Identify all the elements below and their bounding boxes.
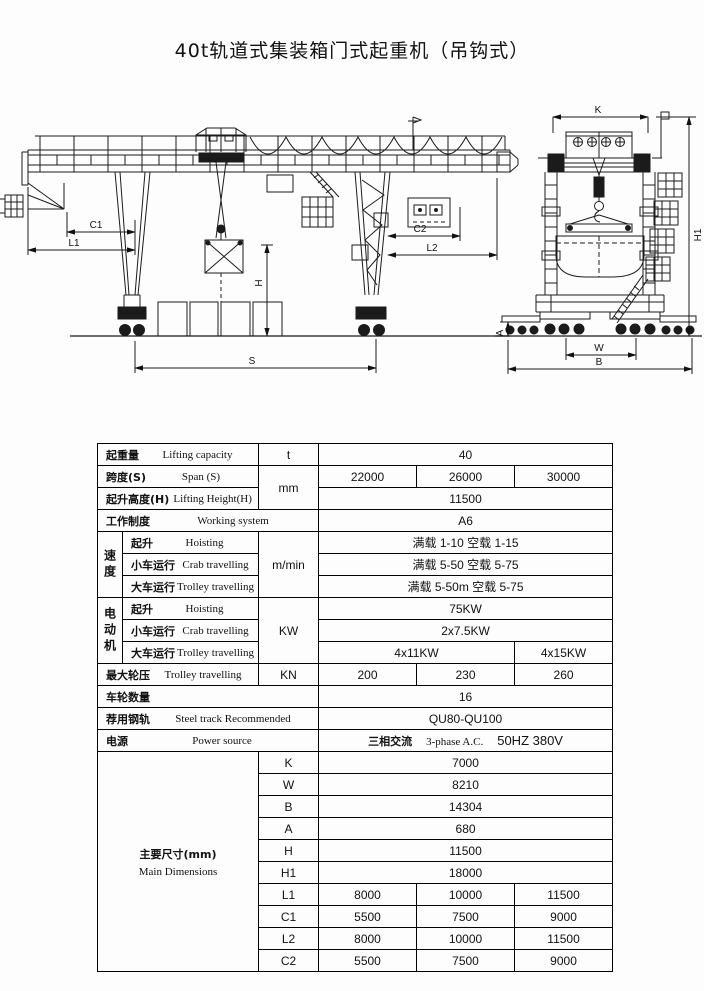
dim-label-b: B	[596, 357, 603, 368]
dim-label-a: A	[495, 329, 506, 336]
group-motor: 电动机	[98, 598, 123, 664]
page-title: 40t轨道式集装箱门式起重机（吊钩式）	[0, 36, 704, 63]
spec-table: 起重量Lifting capacity t 40 跨度(S)Span (S) m…	[97, 443, 613, 972]
unit-max-wheel-load: KN	[259, 664, 319, 686]
label-motor-trolley: 大车运行Trolley travelling	[123, 642, 259, 664]
festoon-cables	[250, 137, 502, 154]
value-motor-trolley-b: 4x15KW	[515, 642, 613, 664]
side-ladder	[612, 173, 682, 323]
dim-value-h: 11500	[319, 840, 613, 862]
dim-value-l2-3: 11500	[515, 928, 613, 950]
dim-key-l2: L2	[259, 928, 319, 950]
dim-value-h1: 18000	[319, 862, 613, 884]
row-max-wheel-load: 最大轮压Trolley travelling KN 200 230 260	[98, 664, 613, 686]
label-speed-trolley: 大车运行Trolley travelling	[123, 576, 259, 598]
dim-value-c1-3: 9000	[515, 906, 613, 928]
value-working-system: A6	[319, 510, 613, 532]
row-steel-track: 荐用钢轨Steel track Recommended QU80-QU100	[98, 708, 613, 730]
dim-key-a: A	[259, 818, 319, 840]
dim-key-c1: C1	[259, 906, 319, 928]
dim-value-c1-1: 5500	[319, 906, 417, 928]
value-steel-track: QU80-QU100	[319, 708, 613, 730]
dim-value-l2-2: 10000	[417, 928, 515, 950]
hook-assembly	[556, 158, 644, 277]
dim-label-l2: L2	[426, 243, 438, 254]
dim-key-l1: L1	[259, 884, 319, 906]
value-lifting-capacity: 40	[319, 444, 613, 466]
row-motor-hoisting: 电动机 起升Hoisting KW 75KW	[98, 598, 613, 620]
label-speed-crab: 小车运行Crab travelling	[123, 554, 259, 576]
dim-key-w: W	[259, 774, 319, 796]
unit-speed: m/min	[259, 532, 319, 598]
value-max-wheel-load-1: 200	[319, 664, 417, 686]
value-max-wheel-load-2: 230	[417, 664, 515, 686]
unit-lifting-capacity: t	[259, 444, 319, 466]
dim-key-c2: C2	[259, 950, 319, 972]
label-max-wheel-load: 最大轮压Trolley travelling	[98, 664, 259, 686]
value-speed-crab: 满载 5-50 空载 5-75	[319, 554, 613, 576]
label-power-source: 电源Power source	[98, 730, 319, 752]
dim-key-b: B	[259, 796, 319, 818]
value-motor-hoisting: 75KW	[319, 598, 613, 620]
railing-posts	[40, 136, 505, 150]
dim-key-h: H	[259, 840, 319, 862]
dim-value-k: 7000	[319, 752, 613, 774]
dim-label-l1: L1	[68, 238, 80, 249]
dim-label-h1: H1	[693, 228, 704, 241]
dim-label-s: S	[249, 356, 256, 367]
label-span: 跨度(S)Span (S)	[98, 466, 259, 488]
dim-label-c2: C2	[414, 224, 427, 235]
label-wheel-count: 车轮数量	[98, 686, 319, 708]
row-speed-crab: 小车运行Crab travelling 满载 5-50 空载 5-75	[98, 554, 613, 576]
label-working-system: 工作制度Working system	[98, 510, 319, 532]
row-motor-trolley: 大车运行Trolley travelling 4x11KW 4x15KW	[98, 642, 613, 664]
value-span-3: 30000	[515, 466, 613, 488]
unit-span: mm	[259, 466, 319, 510]
label-lifting-height: 起升高度(H)Lifting Height(H)	[98, 488, 259, 510]
dim-value-l1-1: 8000	[319, 884, 417, 906]
value-wheel-count: 16	[319, 686, 613, 708]
dim-label-c1: C1	[90, 220, 103, 231]
dim-value-l1-3: 11500	[515, 884, 613, 906]
label-main-dimensions: 主要尺寸(mm)Main Dimensions	[98, 752, 259, 972]
row-lifting-capacity: 起重量Lifting capacity t 40	[98, 444, 613, 466]
label-speed-hoisting: 起升Hoisting	[123, 532, 259, 554]
row-motor-crab: 小车运行Crab travelling 2x7.5KW	[98, 620, 613, 642]
spec-sheet-page: { "title": "40t轨道式集装箱门式起重机（吊钩式）", "drawi…	[0, 0, 704, 991]
dim-key-h1: H1	[259, 862, 319, 884]
dim-value-c2-3: 9000	[515, 950, 613, 972]
row-working-system: 工作制度Working system A6	[98, 510, 613, 532]
label-steel-track: 荐用钢轨Steel track Recommended	[98, 708, 319, 730]
end-view	[495, 112, 702, 374]
row-speed-trolley: 大车运行Trolley travelling 满载 5-50m 空载 5-75	[98, 576, 613, 598]
label-motor-crab: 小车运行Crab travelling	[123, 620, 259, 642]
value-span-1: 22000	[319, 466, 417, 488]
dim-value-w: 8210	[319, 774, 613, 796]
dim-value-a: 680	[319, 818, 613, 840]
dim-label-w: W	[594, 343, 604, 354]
unit-motor: KW	[259, 598, 319, 664]
row-span: 跨度(S)Span (S) mm 22000 26000 30000	[98, 466, 613, 488]
value-motor-crab: 2x7.5KW	[319, 620, 613, 642]
spreader	[205, 240, 243, 302]
value-span-2: 26000	[417, 466, 515, 488]
row-wheel-count: 车轮数量 16	[98, 686, 613, 708]
group-speed: 速度	[98, 532, 123, 598]
dimension-lines-main	[28, 178, 497, 373]
dim-value-l2-1: 8000	[319, 928, 417, 950]
dim-label-h: H	[254, 279, 265, 286]
dim-label-k: K	[595, 105, 602, 116]
label-lifting-capacity: 起重量Lifting capacity	[98, 444, 259, 466]
value-max-wheel-load-3: 260	[515, 664, 613, 686]
value-speed-hoisting: 满载 1-10 空载 1-15	[319, 532, 613, 554]
dim-value-b: 14304	[319, 796, 613, 818]
dim-value-c2-2: 7500	[417, 950, 515, 972]
containers	[158, 302, 282, 336]
row-speed-hoisting: 速度 起升Hoisting m/min 满载 1-10 空载 1-15	[98, 532, 613, 554]
value-power-source: 三相交流3-phase A.C.50HZ 380V	[319, 730, 613, 752]
row-dim-k: 主要尺寸(mm)Main Dimensions K 7000	[98, 752, 613, 774]
dim-key-k: K	[259, 752, 319, 774]
dim-value-c1-2: 7500	[417, 906, 515, 928]
dim-value-l1-2: 10000	[417, 884, 515, 906]
row-power-source: 电源Power source 三相交流3-phase A.C.50HZ 380V	[98, 730, 613, 752]
value-motor-trolley-a: 4x11KW	[319, 642, 515, 664]
label-motor-hoisting: 起升Hoisting	[123, 598, 259, 620]
value-lifting-height: 11500	[319, 488, 613, 510]
dim-value-c2-1: 5500	[319, 950, 417, 972]
row-lifting-height: 起升高度(H)Lifting Height(H) 11500	[98, 488, 613, 510]
value-speed-trolley: 满载 5-50m 空载 5-75	[319, 576, 613, 598]
crane-drawing: C1 L1 C2 L2 S H K A W B H1	[0, 95, 704, 395]
